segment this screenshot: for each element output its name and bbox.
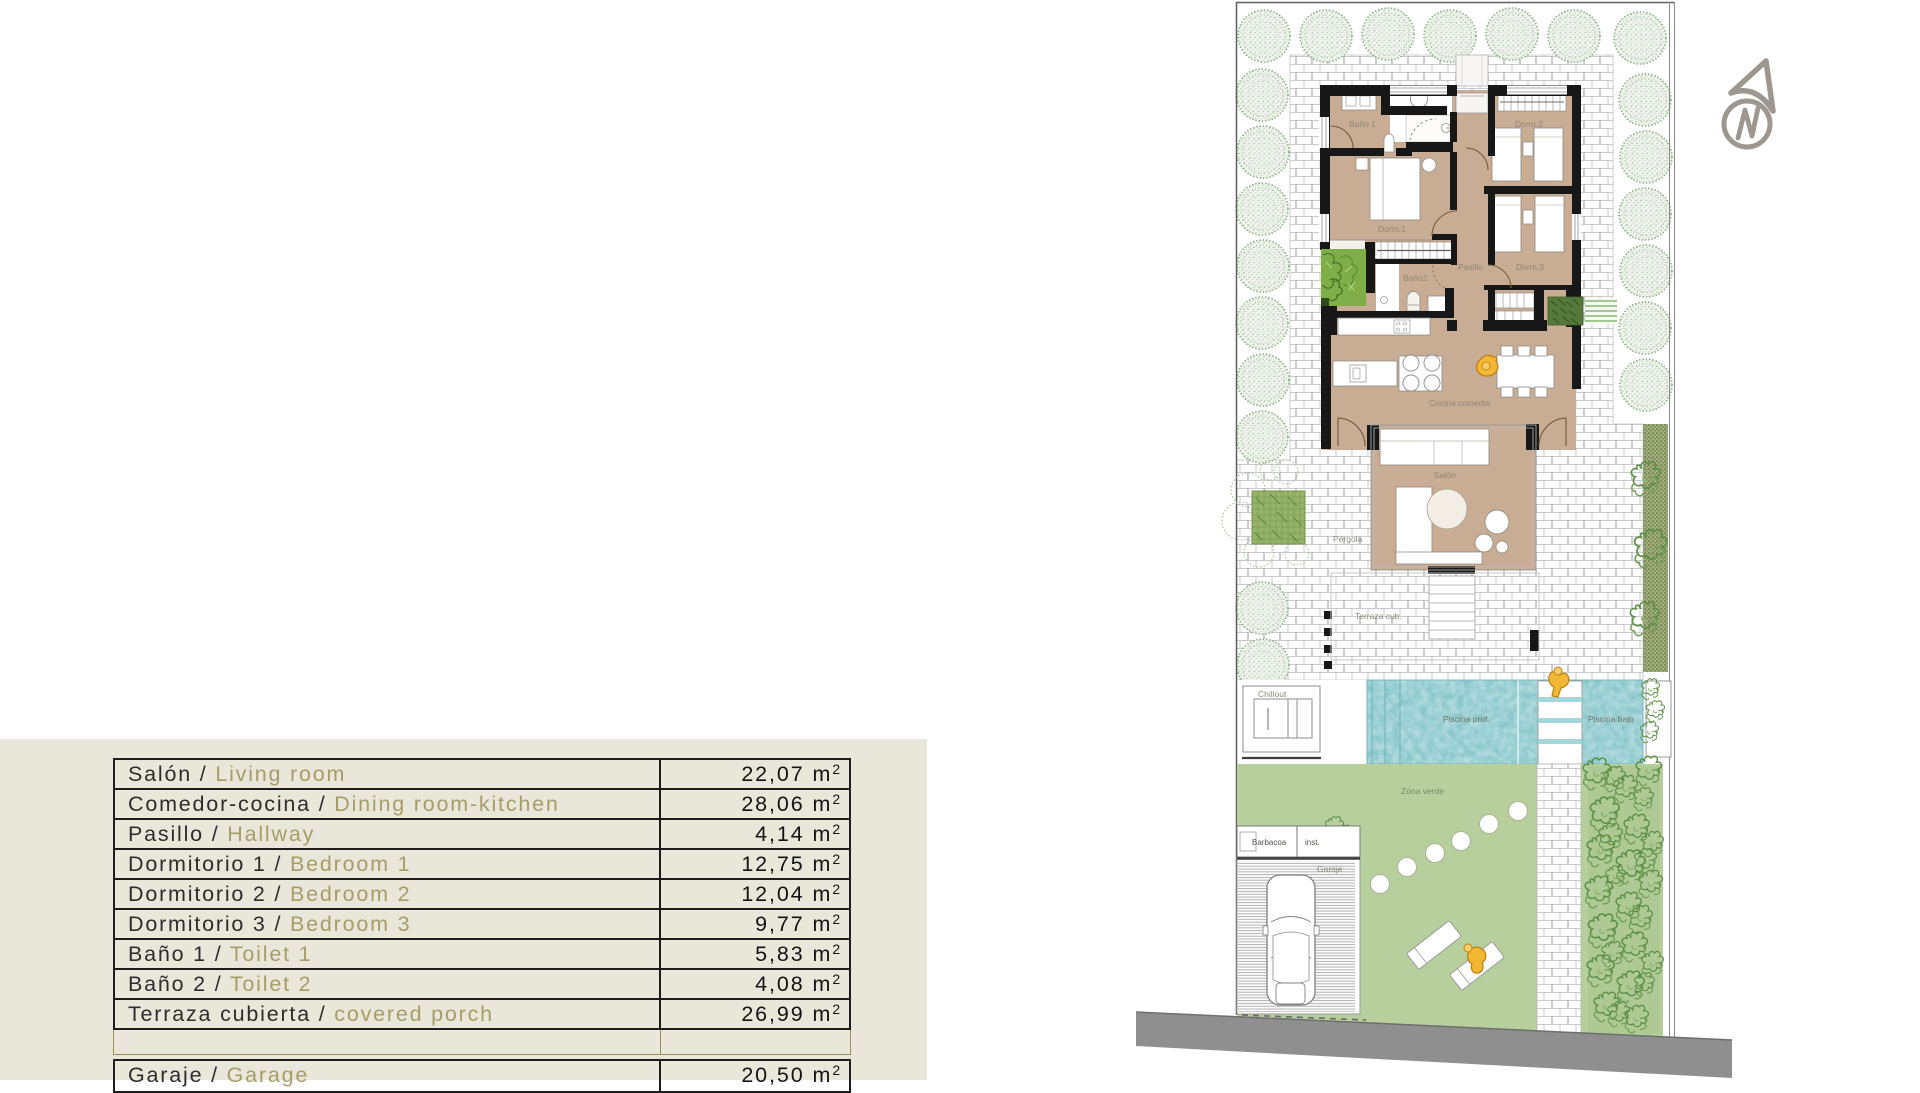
svg-text:inst.: inst. — [1305, 838, 1320, 847]
svg-text:Baño 1: Baño 1 — [1349, 119, 1376, 129]
svg-text:Barbacoa: Barbacoa — [1252, 838, 1287, 847]
svg-text:Baño2: Baño2 — [1403, 273, 1428, 283]
svg-text:Cocina comedor: Cocina comedor — [1429, 398, 1491, 408]
svg-text:Dorm.2: Dorm.2 — [1515, 119, 1543, 129]
svg-text:Pérgola: Pérgola — [1333, 534, 1363, 544]
svg-text:Salón: Salón — [1434, 470, 1456, 480]
svg-text:Terraza cub.: Terraza cub. — [1355, 611, 1402, 621]
svg-text:Chillout: Chillout — [1258, 689, 1287, 699]
svg-text:Garaje: Garaje — [1317, 864, 1343, 874]
svg-text:Dorm.3: Dorm.3 — [1516, 262, 1544, 272]
svg-text:Pasillo: Pasillo — [1458, 262, 1483, 272]
svg-text:Piscina prof.: Piscina prof. — [1443, 714, 1490, 724]
svg-text:Dorm.1: Dorm.1 — [1378, 224, 1406, 234]
svg-text:Zona verde: Zona verde — [1401, 786, 1444, 796]
svg-text:Piscina bajo: Piscina bajo — [1588, 714, 1634, 724]
